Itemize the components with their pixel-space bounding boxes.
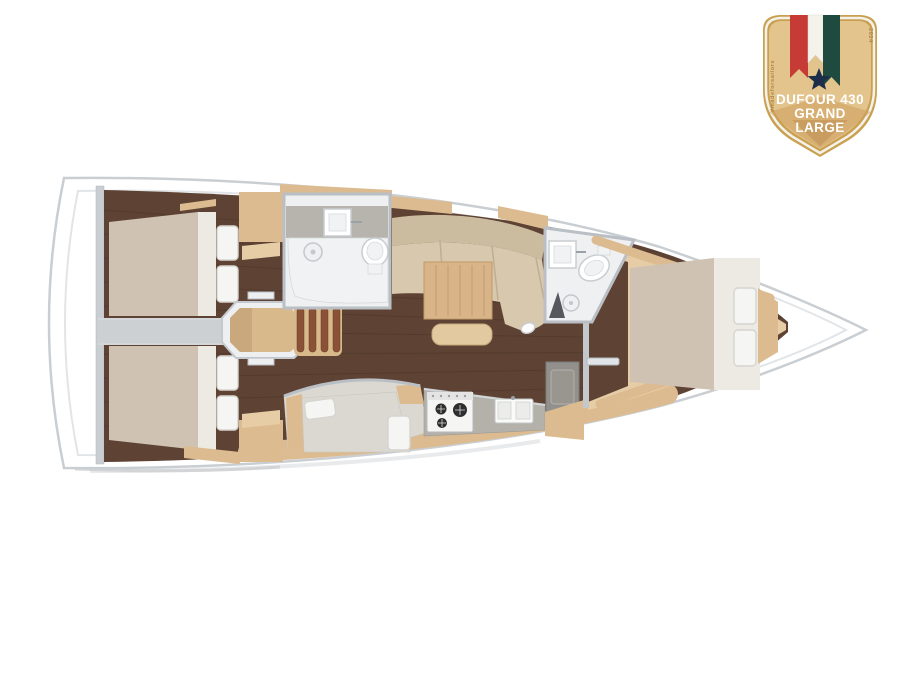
saloon-table <box>424 262 492 319</box>
mid-starboard-cabin <box>284 380 428 452</box>
cabinet <box>239 192 283 242</box>
pillow <box>217 396 238 430</box>
aft-corridor <box>98 318 232 345</box>
bed-sheet <box>198 346 216 450</box>
toilet-tank <box>368 264 382 274</box>
bed-mattress <box>630 258 714 390</box>
pillow <box>304 398 336 420</box>
pillow <box>217 226 238 260</box>
handle <box>248 358 274 365</box>
bed-sheet <box>198 212 216 316</box>
floorplan-svg: #madeforsailors 2024 DUFOUR 430 GRAND LA… <box>0 0 900 675</box>
badge-year: 2024 <box>867 28 873 43</box>
port-head-bathroom <box>280 184 392 308</box>
badge-title-line1: DUFOUR 430 <box>776 92 864 107</box>
bed-mattress <box>109 346 198 450</box>
award-badge: #madeforsailors 2024 DUFOUR 430 GRAND LA… <box>763 15 877 157</box>
pillow <box>217 356 238 390</box>
cabinet <box>396 384 424 404</box>
ribbon-red <box>790 15 808 78</box>
pillow <box>734 330 756 366</box>
pillow <box>734 288 756 324</box>
yacht-floorplan-canvas: #madeforsailors 2024 DUFOUR 430 GRAND LA… <box>0 0 900 675</box>
badge-title-line2: GRAND <box>794 106 846 121</box>
pillow <box>217 266 238 302</box>
badge-title-line3: LARGE <box>795 120 844 135</box>
pillow <box>388 416 410 450</box>
cabin-door <box>587 358 619 365</box>
handle <box>248 292 274 299</box>
bed-mattress <box>109 212 198 316</box>
saloon-bench <box>432 324 492 345</box>
ribbon-green <box>823 15 840 86</box>
